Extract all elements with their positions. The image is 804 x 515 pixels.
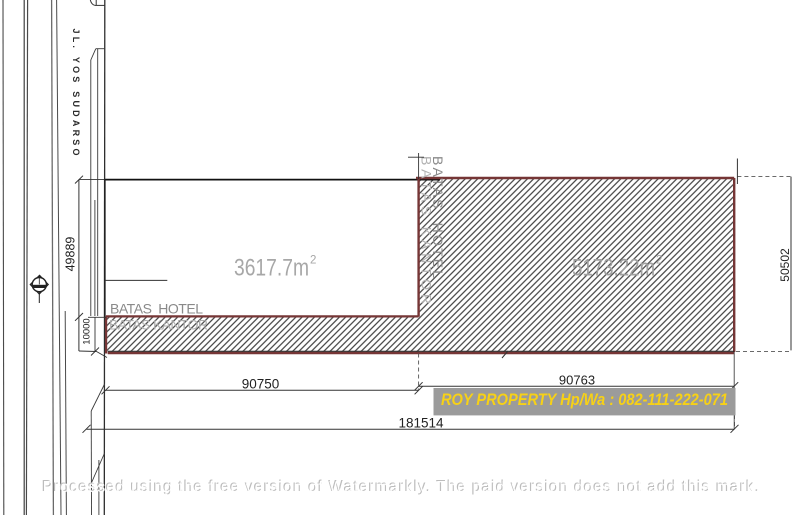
svg-text:90750: 90750	[242, 377, 280, 392]
svg-text:181514: 181514	[398, 415, 444, 430]
svg-text:BATAS HOTEL: BATAS HOTEL	[110, 301, 203, 317]
svg-text:5173.22m: 5173.22m	[572, 255, 655, 282]
svg-text:50502: 50502	[778, 248, 792, 282]
svg-text:90763: 90763	[559, 372, 595, 387]
svg-text:BATAS KANTOR: BATAS KANTOR	[109, 317, 208, 333]
svg-text:3617.7m: 3617.7m	[234, 255, 309, 282]
svg-text:49889: 49889	[64, 237, 78, 272]
svg-text:BATAS HOTEL: BATAS HOTEL	[430, 156, 446, 278]
svg-text:2: 2	[310, 255, 316, 267]
svg-text:Processed using the free versi: Processed using the free version of Wate…	[43, 479, 760, 496]
svg-text:10000: 10000	[82, 318, 93, 344]
svg-text:2: 2	[656, 255, 662, 267]
svg-text:JL. YOS SUDARSO: JL. YOS SUDARSO	[71, 29, 81, 156]
svg-text:ROY PROPERTY Hp/Wa : 082-111-2: ROY PROPERTY Hp/Wa : 082-111-222-071	[441, 391, 728, 409]
